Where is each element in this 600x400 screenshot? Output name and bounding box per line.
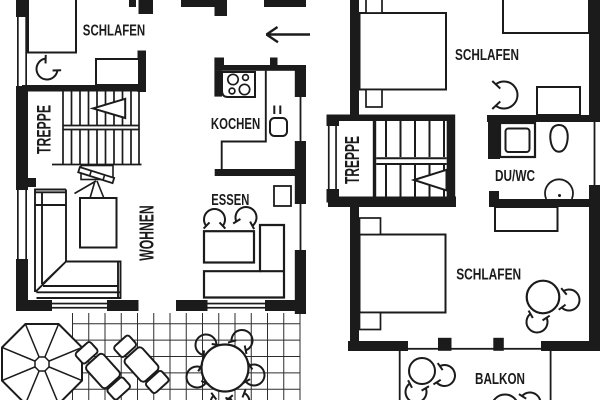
svg-text:KOCHEN: KOCHEN	[211, 116, 260, 133]
svg-text:TREPPE: TREPPE	[342, 136, 364, 184]
svg-text:TREPPE: TREPPE	[35, 105, 56, 154]
svg-text:WOHNEN: WOHNEN	[135, 205, 158, 261]
svg-text:SCHLAFEN: SCHLAFEN	[83, 22, 145, 39]
svg-text:SCHLAFEN: SCHLAFEN	[455, 47, 519, 64]
svg-text:BALKON: BALKON	[475, 371, 525, 388]
svg-text:DU/WC: DU/WC	[495, 168, 535, 185]
svg-text:SCHLAFEN: SCHLAFEN	[456, 267, 521, 284]
